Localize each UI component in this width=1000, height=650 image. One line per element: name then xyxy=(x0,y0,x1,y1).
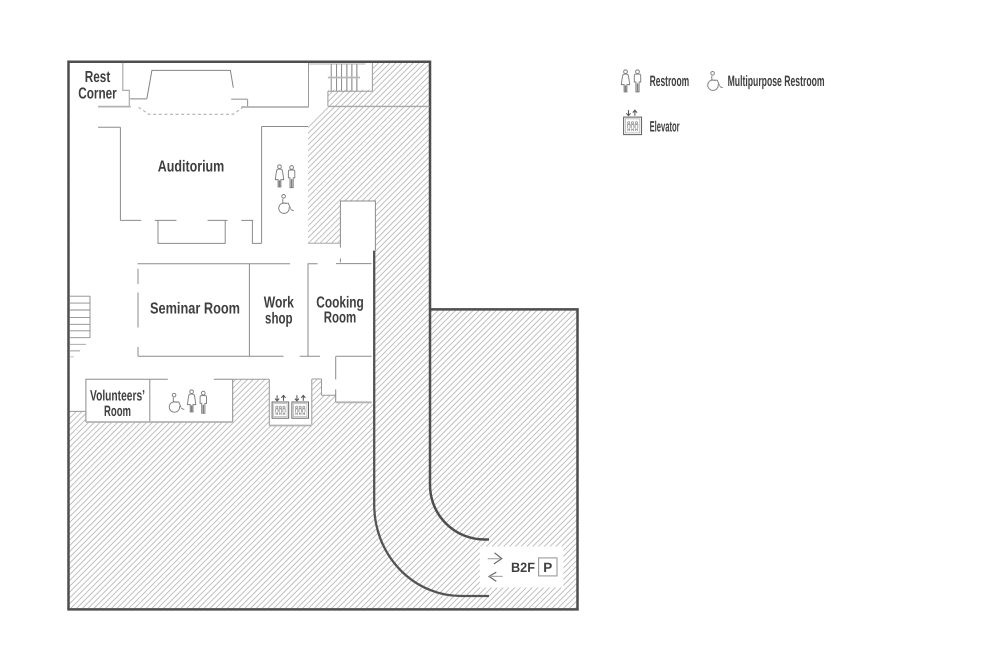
svg-text:Rest: Rest xyxy=(85,69,111,86)
svg-text:Room: Room xyxy=(104,403,131,420)
svg-text:Elevator: Elevator xyxy=(650,118,680,135)
svg-text:shop: shop xyxy=(265,311,293,328)
svg-text:Room: Room xyxy=(324,310,357,327)
svg-text:B2F: B2F xyxy=(511,560,535,575)
svg-text:Auditorium: Auditorium xyxy=(158,159,225,176)
svg-text:Multipurpose Restroom: Multipurpose Restroom xyxy=(728,73,825,90)
svg-text:Seminar Room: Seminar Room xyxy=(150,301,240,318)
svg-text:Corner: Corner xyxy=(78,85,117,102)
svg-text:Work: Work xyxy=(264,295,294,312)
svg-text:Restroom: Restroom xyxy=(650,73,690,90)
svg-text:P: P xyxy=(543,560,552,575)
